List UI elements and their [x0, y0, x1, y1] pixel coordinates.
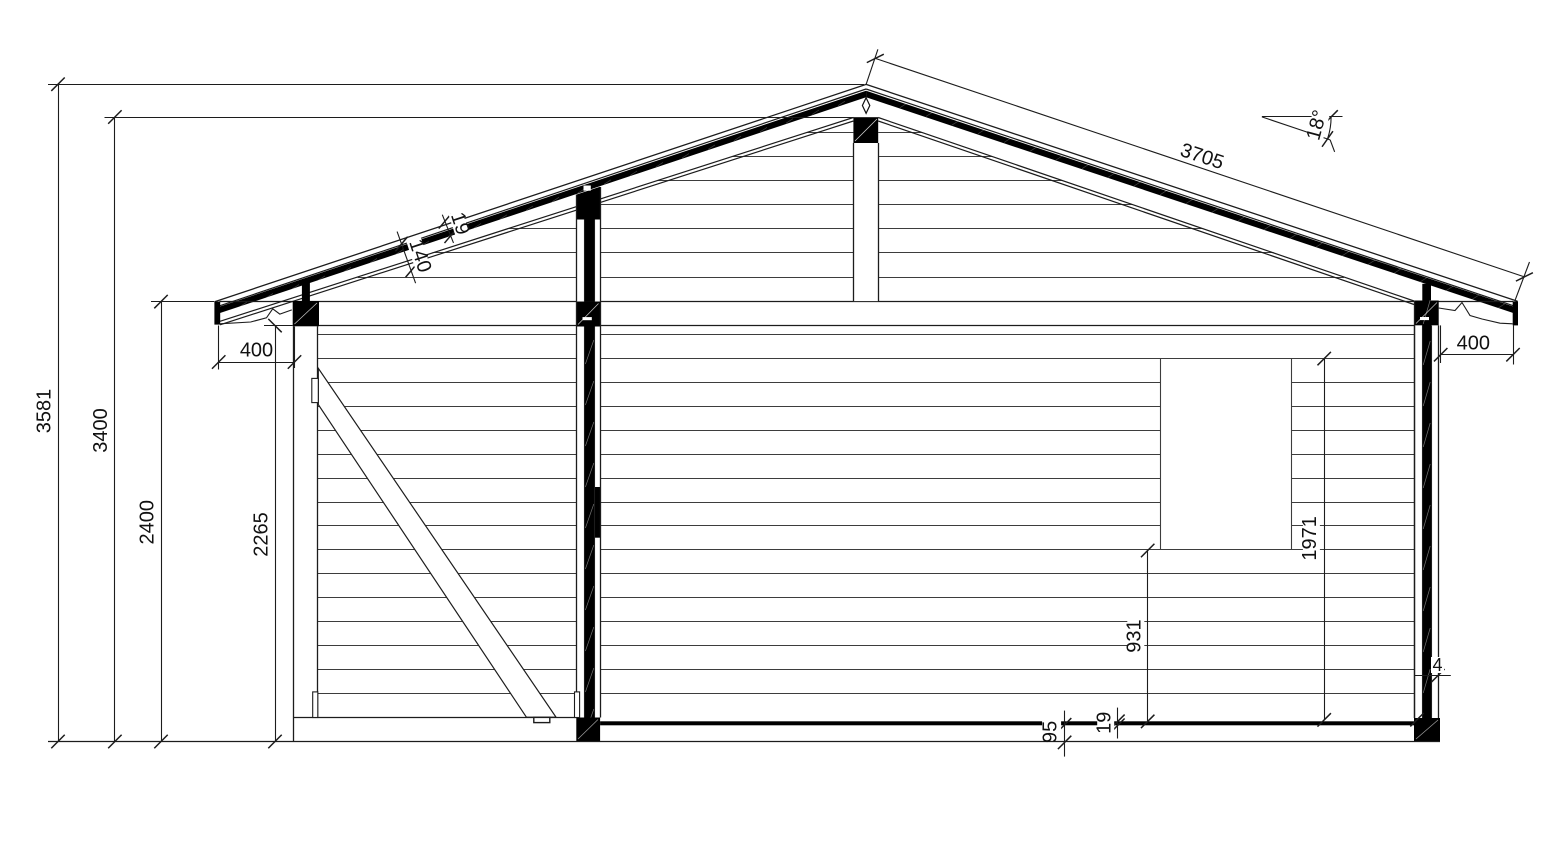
svg-text:2400: 2400: [136, 500, 158, 545]
svg-text:3581: 3581: [33, 389, 55, 434]
svg-text:931: 931: [1124, 619, 1146, 652]
svg-text:4: 4: [1432, 655, 1442, 675]
svg-text:18°: 18°: [1302, 108, 1331, 143]
svg-text:95: 95: [1039, 721, 1061, 743]
svg-text:1971: 1971: [1299, 516, 1321, 561]
svg-text:400: 400: [240, 340, 273, 362]
svg-text:400: 400: [1457, 332, 1490, 354]
svg-text:3705: 3705: [1177, 139, 1226, 174]
svg-text:3400: 3400: [90, 408, 112, 453]
svg-text:2265: 2265: [250, 512, 272, 557]
svg-text:19: 19: [1094, 712, 1116, 734]
